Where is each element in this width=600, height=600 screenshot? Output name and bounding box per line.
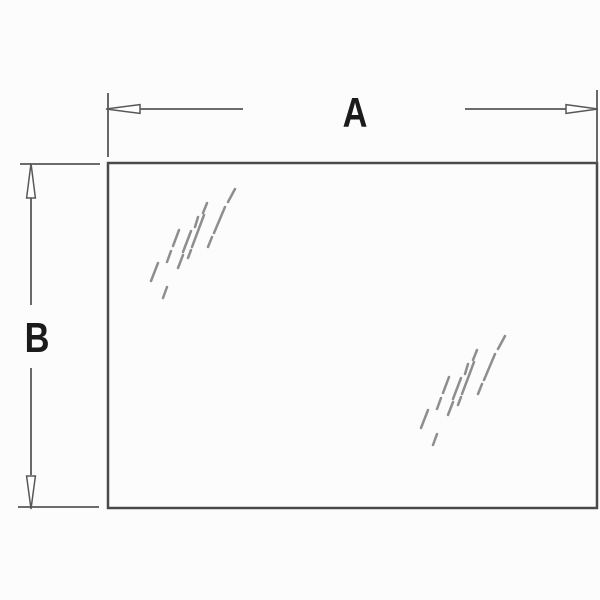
- glass-pane-dimension-diagram: A B: [0, 0, 600, 600]
- extension-lines: [18, 90, 597, 507]
- shine-dash: [173, 230, 179, 246]
- shine-dash: [188, 250, 191, 258]
- shine-dash: [458, 397, 461, 405]
- shine-dash: [453, 378, 461, 399]
- shine-dash: [151, 263, 158, 281]
- shine-dash: [203, 203, 207, 213]
- shine-dash: [228, 189, 235, 202]
- shine-dash: [478, 384, 482, 394]
- width-dimension-label: A: [343, 90, 368, 137]
- shine-dash: [498, 336, 505, 349]
- dimension-drawing-canvas: A B: [0, 0, 600, 600]
- shine-dash: [195, 217, 198, 227]
- shine-dash: [421, 410, 428, 428]
- width-arrow-right-icon: [566, 105, 598, 114]
- shine-dash: [183, 231, 191, 252]
- shine-dash: [214, 207, 225, 233]
- shine-dash: [163, 287, 167, 298]
- shine-dash: [178, 255, 183, 268]
- height-arrow-down-icon: [27, 476, 36, 509]
- height-dimension: B: [25, 164, 50, 510]
- shine-dash: [437, 398, 441, 409]
- glass-shine-marks-lower-right: [421, 336, 505, 445]
- shine-dash: [433, 434, 437, 445]
- width-arrow-left-icon: [106, 105, 140, 114]
- height-arrow-up-icon: [27, 164, 36, 199]
- shine-dash: [167, 251, 171, 262]
- shine-dash: [473, 350, 477, 360]
- shine-dash: [484, 354, 495, 380]
- shine-dash: [448, 402, 453, 415]
- shine-dash: [208, 237, 212, 247]
- glass-shine-marks-upper-left: [151, 189, 235, 298]
- shine-dash: [443, 377, 449, 393]
- width-dimension: A: [106, 90, 598, 137]
- height-dimension-label: B: [25, 315, 50, 362]
- glass-panel: [108, 163, 597, 508]
- shine-dash: [465, 364, 468, 374]
